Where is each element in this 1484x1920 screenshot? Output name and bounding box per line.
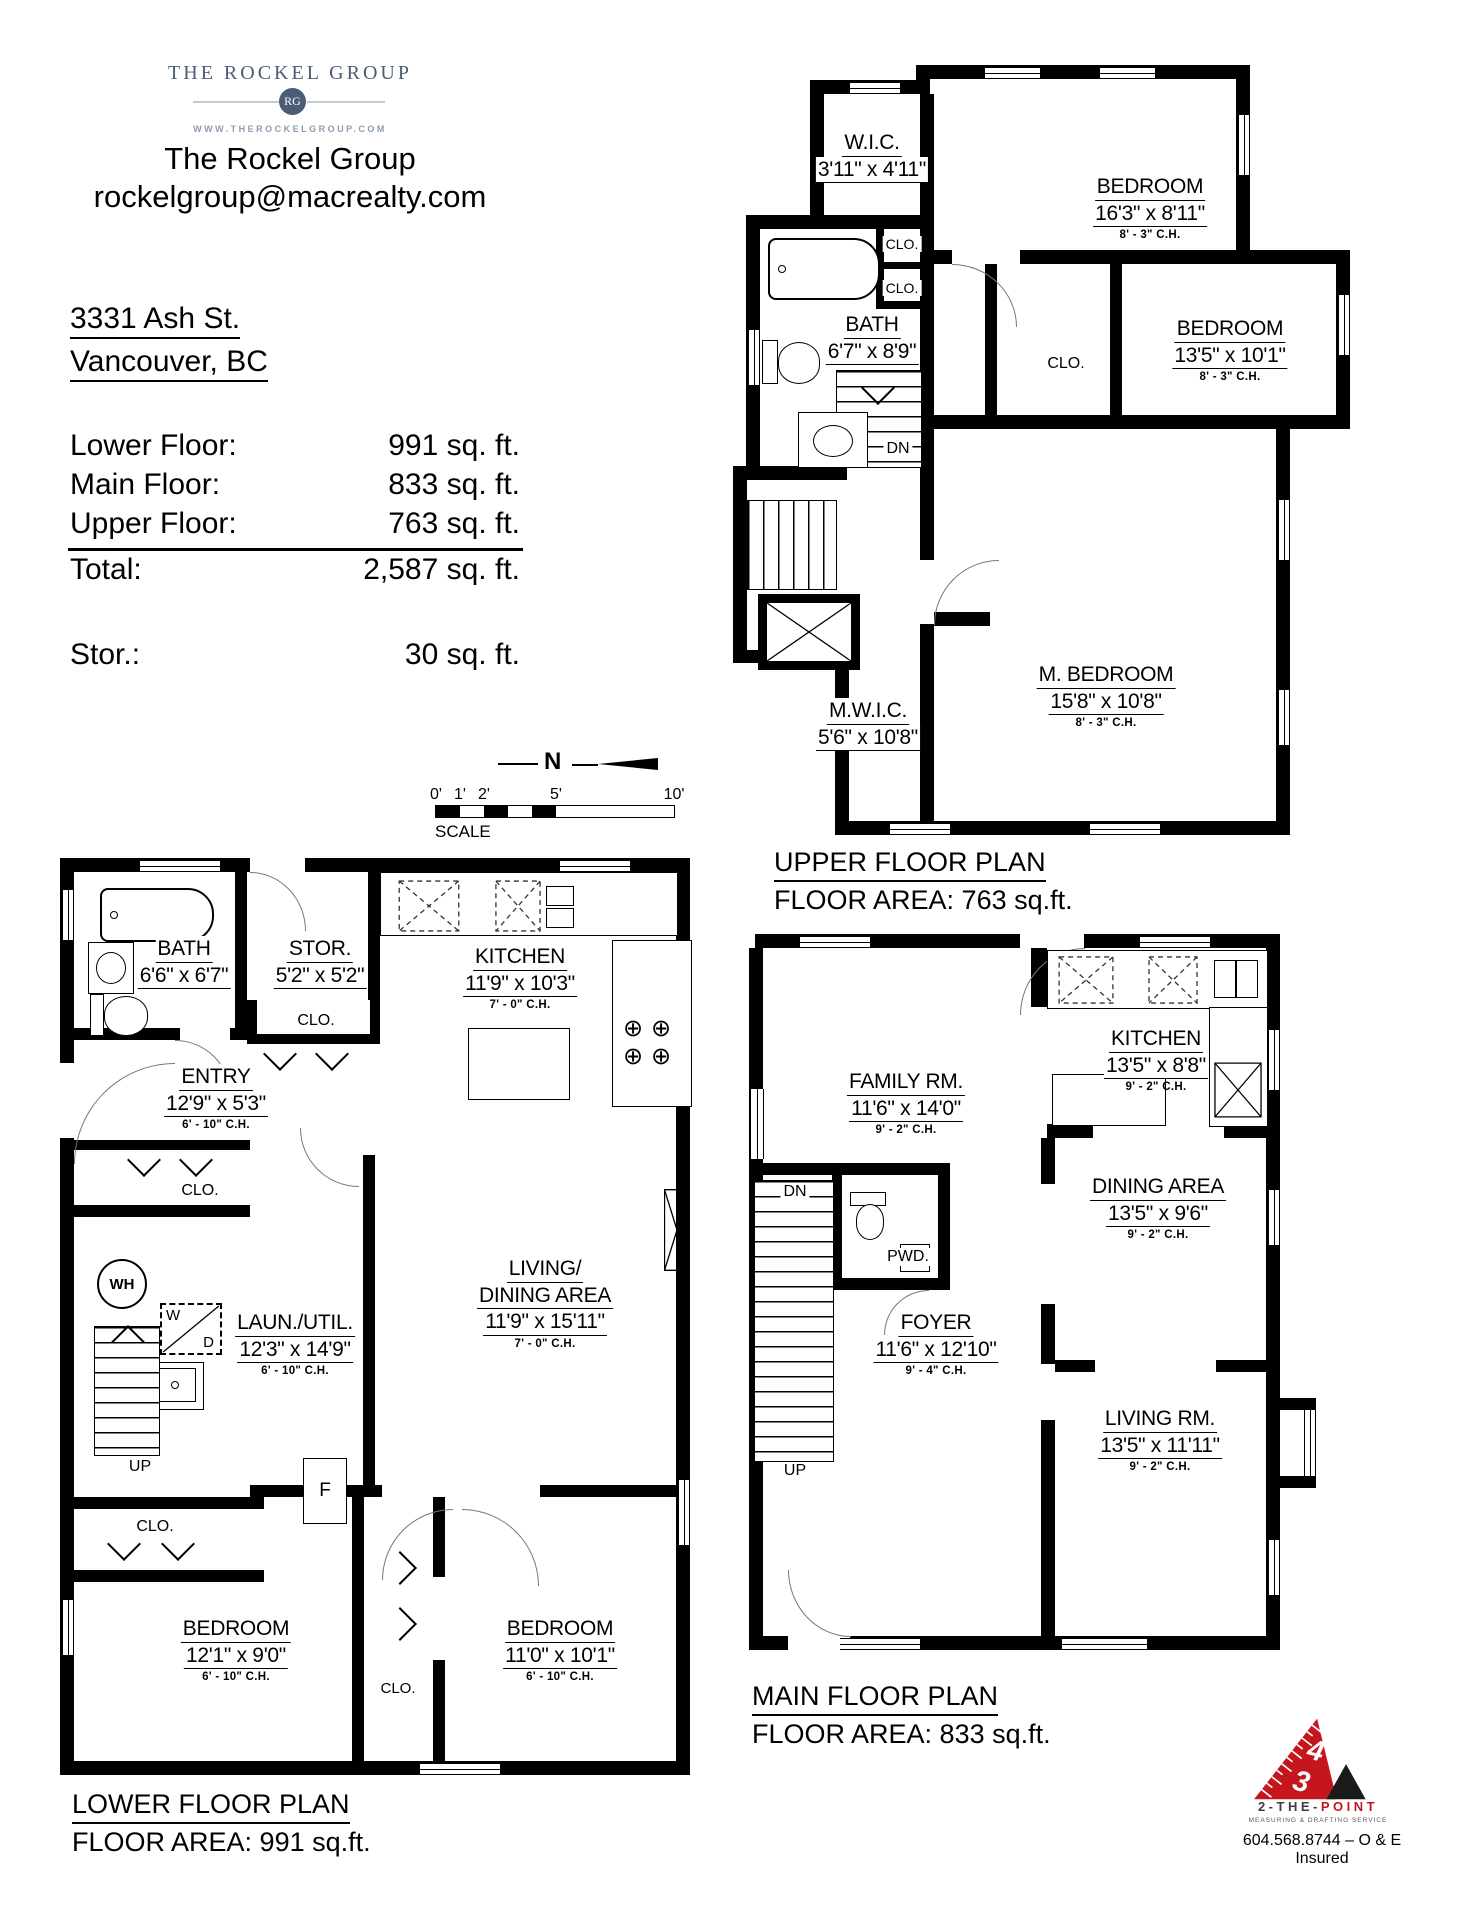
area-label: Stor.: [70,638,140,671]
room-label-dining: DINING AREA13'5" x 9'6"9' - 2" C.H. [1090,1174,1226,1241]
room-label-bath: BATH6'7" x 8'9" [826,312,919,365]
powder-room-label: PWD. [884,1248,932,1266]
room-dims: 3'11" x 4'11" [816,157,928,184]
room-ceiling: 6' - 10" C.H. [164,1119,268,1131]
room-dims: 13'5" x 11'11" [1098,1433,1222,1460]
room-ceiling: 8' - 3" C.H. [1037,717,1176,729]
window [1090,823,1160,835]
wall [74,1570,264,1582]
area-row-total: Total:2,587 sq. ft. [70,553,520,587]
room-dims: 13'5" x 9'6" [1106,1201,1210,1228]
room-name: W.I.C. [842,130,901,157]
room-name: FOYER [899,1310,974,1337]
room-label-living: LIVING RM.13'5" x 11'11"9' - 2" C.H. [1098,1406,1222,1473]
room-ceiling: 7' - 0" C.H. [477,1338,613,1350]
door-swing [462,1509,539,1586]
freezer-icon: F [303,1458,347,1524]
window [1140,936,1210,948]
room-label-bedroom2: BEDROOM11'0" x 10'1"6' - 10" C.H. [503,1616,617,1683]
washer-label: W [166,1307,180,1324]
room-name: BATH [155,936,212,963]
wall [832,1278,950,1290]
toilet-icon [90,994,104,1036]
room-name: BEDROOM [181,1616,291,1643]
cabinet-icon [398,880,460,932]
room-dims: 11'6" x 12'10" [873,1337,998,1364]
wall [1047,1124,1093,1138]
company-email: rockelgroup@macrealty.com [25,179,555,215]
scale-bar [435,805,675,818]
wall [763,1163,950,1175]
window [840,1638,920,1650]
bay-window-wall [1280,1476,1316,1488]
scale-tick: 0' [430,786,442,804]
window [800,936,870,948]
freezer-label: F [319,1480,331,1502]
window [850,82,900,94]
wall [305,858,690,872]
lower-plan-title: LOWER FLOOR PLANFLOOR AREA: 991 sq.ft. [72,1786,371,1861]
room-label-kitchen: KITCHEN13'5" x 8'8"9' - 2" C.H. [1104,1026,1208,1093]
closet-label: CLO. [133,1518,176,1536]
wall [746,215,934,229]
wall [247,1034,380,1044]
wall [368,872,380,1000]
company-name: The Rockel Group [40,141,540,177]
address-line1: 3331 Ash St. [70,302,240,339]
plan-area-text: FLOOR AREA: 763 sq.ft. [774,885,1073,915]
main-plan-title: MAIN FLOOR PLANFLOOR AREA: 833 sq.ft. [752,1678,1051,1753]
room-name: ENTRY [179,1064,252,1091]
room-name: LIVING/ [507,1256,584,1283]
area-value: 833 sq. ft. [388,468,520,502]
wall [60,1138,74,1775]
logo-brand: THE ROCKEL GROUP [90,62,490,85]
window [560,860,630,872]
room-ceiling: 9' - 2" C.H. [1098,1461,1222,1473]
wall [755,1636,788,1650]
room-ceiling: 6' - 10" C.H. [235,1365,355,1377]
room-name: BATH [843,312,900,339]
bay-window-wall [1280,1398,1316,1410]
room-dims: 11'6" x 14'0" [849,1096,963,1123]
logo-monogram: RG [279,88,306,115]
wall [540,1485,690,1497]
room-name: KITCHEN [1109,1026,1203,1053]
window [1268,1030,1280,1090]
door-swing [952,264,1017,327]
area-value: 30 sq. ft. [405,638,520,672]
room-label-bath: BATH6'6" x 6'7" [138,936,231,989]
wall [74,1205,250,1217]
room-dims: 12'3" x 14'9" [237,1337,352,1364]
wall [433,1660,445,1761]
room-label-bedroom2: BEDROOM13'5" x 10'1"8' - 3" C.H. [1172,316,1287,383]
door-swing [300,1128,359,1187]
wall [1055,1360,1095,1372]
drafting-brand: 2-THE-POINT [1250,1799,1386,1814]
wall [1216,1360,1266,1372]
wall [1041,1304,1055,1364]
stove-burner-icon: ⊕ [620,1016,646,1042]
room-name: LAUN./UTIL. [235,1310,355,1337]
room-name: BEDROOM [505,1616,615,1643]
cabinet-icon [495,880,541,932]
room-label-foyer: FOYER11'6" x 12'10"9' - 4" C.H. [873,1310,998,1377]
wall [352,1497,364,1761]
room-name: M.W.I.C. [827,698,909,725]
area-label: Main Floor: [70,468,220,501]
wall [934,415,1350,429]
area-label: Lower Floor: [70,429,237,462]
room-ceiling: 7' - 0" C.H. [463,999,577,1011]
floor-plan-sheet: THE ROCKEL GROUP RG WWW.THEROCKELGROUP.C… [0,0,1484,1920]
wall [938,1163,950,1290]
sink-basin-icon [1214,960,1236,998]
wall [363,1155,375,1497]
window [140,860,220,872]
closet-label: CLO. [1044,355,1087,373]
drafting-tagline: MEASURING & DRAFTING SERVICE [1244,1817,1392,1824]
logo-website: WWW.THEROCKELGROUP.COM [140,124,440,134]
room-label-family: FAMILY RM.11'6" x 14'0"9' - 2" C.H. [847,1069,965,1136]
room-name: LIVING RM. [1103,1406,1217,1433]
drafting-brand-prefix: 2-THE- [1258,1799,1321,1814]
room-name: M. BEDROOM [1037,662,1176,689]
room-dims: 16'3" x 8'11" [1093,201,1207,228]
upper-plan-title: UPPER FLOOR PLANFLOOR AREA: 763 sq.ft. [774,844,1073,919]
room-dims: 12'9" x 5'3" [164,1091,268,1118]
area-value: 991 sq. ft. [388,429,520,463]
wall [733,466,747,663]
window [748,330,760,385]
sink-basin-icon [1236,960,1258,998]
room-name: STOR. [287,936,353,963]
room-name: FAMILY RM. [847,1069,965,1096]
drafting-logo-icon: 4 3 [1252,1716,1376,1804]
chimney-icon [664,1188,690,1272]
area-label: Upper Floor: [70,507,237,540]
sink-basin-icon [546,908,574,928]
area-row-main: Main Floor:833 sq. ft. [70,468,520,502]
wall [733,466,847,480]
bifold-door-icon [383,1607,417,1641]
window [420,1763,500,1775]
wall [920,624,934,821]
stair-direction-label: DN [883,440,912,458]
wall [60,1761,690,1775]
island-counter [468,1028,570,1100]
room-dims: 11'0" x 10'1" [503,1643,617,1670]
logo-divider [307,101,385,103]
area-row-upper: Upper Floor:763 sq. ft. [70,507,520,541]
room-ceiling: 9' - 2" C.H. [1104,1081,1208,1093]
window [1338,295,1350,355]
scale-tick: 5' [550,786,562,804]
water-heater-label: WH [110,1276,135,1293]
window [1100,67,1155,79]
stairs [754,1180,834,1462]
room-dims: 15'8" x 10'8" [1048,689,1163,716]
window [62,1600,74,1655]
room-dims: 6'7" x 8'9" [826,339,919,366]
area-value: 2,587 sq. ft. [363,553,520,587]
water-heater-icon: WH [97,1259,147,1309]
room-dims: 11'9" x 15'11" [483,1309,607,1336]
cabinet-icon [1058,956,1114,1004]
room-name: DINING AREA [1090,1174,1226,1201]
plan-area-text: FLOOR AREA: 991 sq.ft. [72,1827,371,1857]
area-row-lower: Lower Floor:991 sq. ft. [70,429,520,463]
room-label-entry: ENTRY12'9" x 5'3"6' - 10" C.H. [164,1064,268,1131]
window [985,67,1040,79]
window [1238,115,1250,175]
room-name: DINING AREA [477,1283,613,1310]
washer-dryer-icon: W D [160,1303,222,1355]
closet-label: CLO. [178,1182,221,1200]
room-label-kitchen: KITCHEN11'9" x 10'3"7' - 0" C.H. [463,944,577,1011]
room-name: BEDROOM [1095,174,1205,201]
wall [916,65,930,81]
room-ceiling: 8' - 3" C.H. [1172,371,1287,383]
dryer-label: D [203,1334,214,1351]
bathtub-icon [100,888,214,942]
wall [74,1497,264,1509]
stair-direction-label: UP [126,1458,154,1476]
wall [876,301,928,309]
drafting-brand-accent: POINT [1321,1799,1378,1814]
door-swing [788,1570,851,1637]
room-label-stor: STOR.5'2" x 5'2" [274,936,367,989]
room-label-living-dining: LIVING/DINING AREA11'9" x 15'11"7' - 0" … [477,1256,613,1350]
room-dims: 5'6" x 10'8" [816,725,920,752]
plan-area-text: FLOOR AREA: 833 sq.ft. [752,1719,1051,1749]
door-swing [934,560,999,625]
window [678,1480,690,1545]
logo-divider [193,101,279,103]
scale-tick: 2' [478,786,490,804]
scale-tick: 10' [664,786,685,804]
closet-label: CLO. [883,280,922,296]
window [1278,690,1290,745]
closet-label: CLO. [294,1012,337,1030]
scale-tick: 1' [454,786,466,804]
closet-label: CLO. [377,1680,418,1697]
wall [1110,264,1122,415]
north-label: N [544,748,561,776]
toilet-icon [104,996,148,1036]
wall [934,250,952,264]
stove-icon [1214,1062,1262,1118]
door-swing [250,872,306,931]
area-value: 763 sq. ft. [388,507,520,541]
wall [925,65,1250,79]
bathtub-icon [768,238,880,300]
toilet-icon [856,1204,884,1240]
cabinet-icon [1148,956,1198,1004]
wall [755,934,1020,948]
stair-direction-label: UP [781,1462,809,1480]
stair-direction-label: DN [780,1183,809,1201]
address-line2: Vancouver, BC [70,345,268,382]
north-line [572,764,598,766]
wall [876,262,928,269]
room-label-mwic: M.W.I.C.5'6" x 10'8" [816,698,920,751]
window [1062,1638,1147,1650]
scale-label: SCALE [435,822,491,842]
room-dims: 13'5" x 10'1" [1172,343,1287,370]
room-ceiling: 6' - 10" C.H. [181,1671,291,1683]
room-label-bedroom1: BEDROOM12'1" x 9'0"6' - 10" C.H. [181,1616,291,1683]
window [890,823,950,835]
room-label-mbedroom: M. BEDROOM15'8" x 10'8"8' - 3" C.H. [1037,662,1176,729]
wall [230,1028,247,1040]
room-ceiling: 8' - 3" C.H. [1093,229,1207,241]
window [1278,500,1290,560]
room-label-wic: W.I.C.3'11" x 4'11" [816,130,928,183]
room-dims: 5'2" x 5'2" [274,963,367,990]
stove-burner-icon: ⊕ [620,1044,646,1070]
plan-title-text: MAIN FLOOR PLAN [752,1678,998,1716]
wall [1041,1420,1055,1636]
room-dims: 12'1" x 9'0" [184,1643,288,1670]
wall [1020,250,1350,264]
room-ceiling: 9' - 2" C.H. [847,1124,965,1136]
window [1268,1540,1280,1595]
plan-title-text: UPPER FLOOR PLAN [774,844,1046,882]
area-label: Total: [70,553,142,586]
wall [1276,429,1290,835]
wall [1041,1138,1055,1184]
sink-basin-icon [546,886,574,906]
window [750,1089,764,1159]
room-ceiling: 6' - 10" C.H. [503,1671,617,1683]
room-dims: 11'9" x 10'3" [463,971,577,998]
stove-burner-icon: ⊕ [648,1016,674,1042]
window [1268,1190,1280,1245]
window [62,890,74,940]
shaft-icon [758,594,860,670]
plan-title-text: LOWER FLOOR PLAN [72,1786,350,1824]
stairs [747,500,837,590]
room-dims: 6'6" x 6'7" [138,963,231,990]
toilet-icon [762,340,778,384]
closet-label: CLO. [883,236,922,252]
table-rule [68,548,523,551]
window [1304,1410,1316,1476]
door-swing [74,1063,175,1164]
area-row-storage: Stor.:30 sq. ft. [70,638,520,672]
room-label-laun: LAUN./UTIL.12'3" x 14'9"6' - 10" C.H. [235,1310,355,1377]
toilet-icon [778,342,820,384]
sink-vanity-icon [88,942,134,994]
room-dims: 13'5" x 8'8" [1104,1053,1208,1080]
wall [235,872,247,1028]
stove-burner-icon: ⊕ [648,1044,674,1070]
room-name: KITCHEN [473,944,567,971]
north-line [498,763,538,765]
drafting-phone: 604.568.8744 – O & E Insured [1222,1832,1422,1868]
room-ceiling: 9' - 2" C.H. [1090,1229,1226,1241]
sink-vanity-icon [798,412,868,468]
room-name: BEDROOM [1175,316,1285,343]
room-ceiling: 9' - 4" C.H. [873,1365,998,1377]
north-arrow-icon [598,758,658,770]
room-label-bedroom1: BEDROOM16'3" x 8'11"8' - 3" C.H. [1093,174,1207,241]
